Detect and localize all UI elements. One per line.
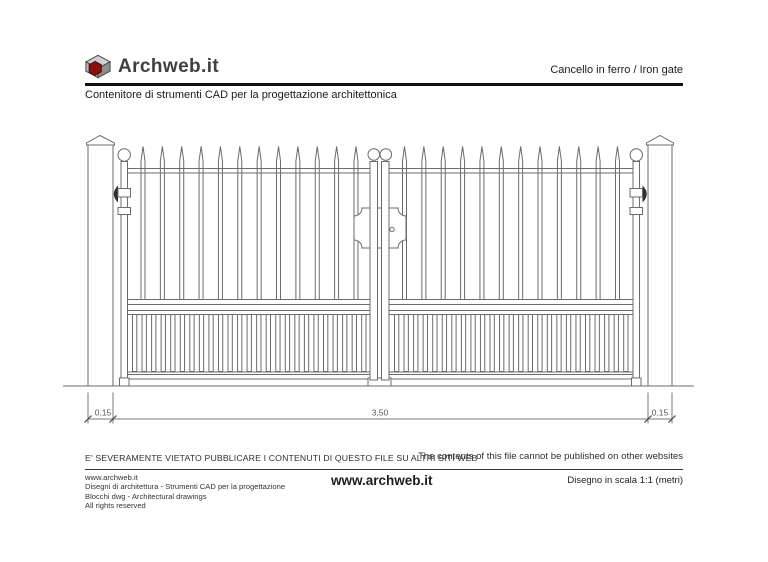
dim-label-right: 0,15: [652, 408, 669, 418]
left-hinge-collar-top: [118, 189, 131, 198]
slat: [509, 315, 513, 372]
footer-info-line: Disegni di architettura - Strumenti CAD …: [85, 482, 285, 491]
slat: [276, 315, 280, 372]
slat: [395, 315, 399, 372]
slat: [304, 315, 308, 372]
lock-plate: [354, 208, 406, 248]
spear-bar: [315, 147, 319, 300]
spear-bar: [296, 147, 300, 300]
left-pillar: [88, 145, 113, 386]
bottom-rail: [389, 372, 633, 379]
slat: [199, 315, 203, 372]
slat: [557, 315, 561, 372]
spear-bar: [499, 147, 503, 300]
dim-label-left: 0,15: [95, 408, 112, 418]
left-hinge-collar-bottom: [118, 208, 131, 215]
slat: [452, 315, 456, 372]
slat: [547, 315, 551, 372]
left-pillar-cap: [87, 136, 115, 146]
slat: [500, 315, 504, 372]
slat: [586, 315, 590, 372]
spear-bar: [277, 147, 281, 300]
right-hinge-collar-bottom: [630, 208, 643, 215]
slat: [218, 315, 222, 372]
scale-note: Disegno in scala 1:1 (metri): [567, 475, 683, 486]
slat: [519, 315, 523, 372]
slat: [238, 315, 242, 372]
spear-bar: [160, 147, 164, 300]
footer-info-line: All rights reserved: [85, 501, 285, 510]
slat: [152, 315, 156, 372]
footer-site-link[interactable]: www.archweb.it: [331, 473, 433, 488]
slat: [605, 315, 609, 372]
spear-bar: [461, 147, 465, 300]
right-hinge-collar-top: [630, 189, 643, 198]
spear-bar: [577, 147, 581, 300]
slat: [314, 315, 318, 372]
slat: [333, 315, 337, 372]
spear-bar: [218, 147, 222, 300]
slat: [566, 315, 570, 372]
dim-label-center: 3,50: [372, 408, 389, 418]
center-ball-finial-right: [380, 149, 392, 161]
footer-info-block: www.archweb.it Disegni di architettura -…: [85, 473, 285, 511]
mid-rail: [389, 300, 633, 305]
slat: [471, 315, 475, 372]
slat: [228, 315, 232, 372]
spear-bar: [519, 147, 523, 300]
center-stile-left: [370, 162, 378, 381]
slat: [180, 315, 184, 372]
lower-rail: [128, 311, 371, 315]
page: Archweb.it Cancello in ferro / Iron gate…: [0, 0, 768, 562]
spear-bar: [615, 147, 619, 300]
slat: [266, 315, 270, 372]
left-ball-finial: [118, 149, 130, 161]
slat: [538, 315, 542, 372]
spear-bar: [335, 147, 339, 300]
slat: [324, 315, 328, 372]
spear-bar: [422, 147, 426, 300]
slat: [490, 315, 494, 372]
spear-bar: [238, 147, 242, 300]
spear-bar: [480, 147, 484, 300]
bottom-rail: [128, 372, 371, 379]
slat: [442, 315, 446, 372]
slat: [257, 315, 261, 372]
spear-bar: [180, 147, 184, 300]
slat: [404, 315, 408, 372]
gate-infill: [128, 147, 634, 380]
slat: [247, 315, 251, 372]
slat: [295, 315, 299, 372]
slat: [595, 315, 599, 372]
right-stile-foot: [632, 378, 642, 386]
slat: [433, 315, 437, 372]
footer-info-line: www.archweb.it: [85, 473, 285, 482]
slat: [528, 315, 532, 372]
slat: [576, 315, 580, 372]
slat: [285, 315, 289, 372]
footer-info-line: Blocchi dwg - Architectural drawings: [85, 492, 285, 501]
right-pillar: [648, 145, 672, 386]
slat: [171, 315, 175, 372]
slat: [133, 315, 137, 372]
center-stile-right: [382, 162, 390, 381]
footer-divider: [85, 469, 683, 470]
right-pillar-cap: [647, 136, 674, 146]
left-hinge-icon: [114, 186, 118, 203]
slat: [161, 315, 165, 372]
copyright-warning-en: The contents of this file cannot be publ…: [418, 451, 683, 462]
slat: [461, 315, 465, 372]
spear-bar: [596, 147, 600, 300]
spear-bar: [557, 147, 561, 300]
slat: [423, 315, 427, 372]
slat: [614, 315, 618, 372]
slat: [343, 315, 347, 372]
slat: [480, 315, 484, 372]
slat: [414, 315, 418, 372]
left-stile-foot: [120, 378, 130, 386]
slat: [352, 315, 356, 372]
slat: [142, 315, 146, 372]
spear-bar: [257, 147, 261, 300]
spear-bar: [199, 147, 203, 300]
center-ball-finial-left: [368, 149, 380, 161]
right-ball-finial: [630, 149, 642, 161]
slat: [209, 315, 213, 372]
lower-rail: [389, 311, 633, 315]
spear-bar: [141, 147, 145, 300]
slat: [362, 315, 366, 372]
slat: [624, 315, 628, 372]
right-hinge-icon: [643, 186, 647, 203]
mid-rail: [128, 300, 371, 305]
spear-bar: [441, 147, 445, 300]
slat: [190, 315, 194, 372]
spear-bar: [538, 147, 542, 300]
